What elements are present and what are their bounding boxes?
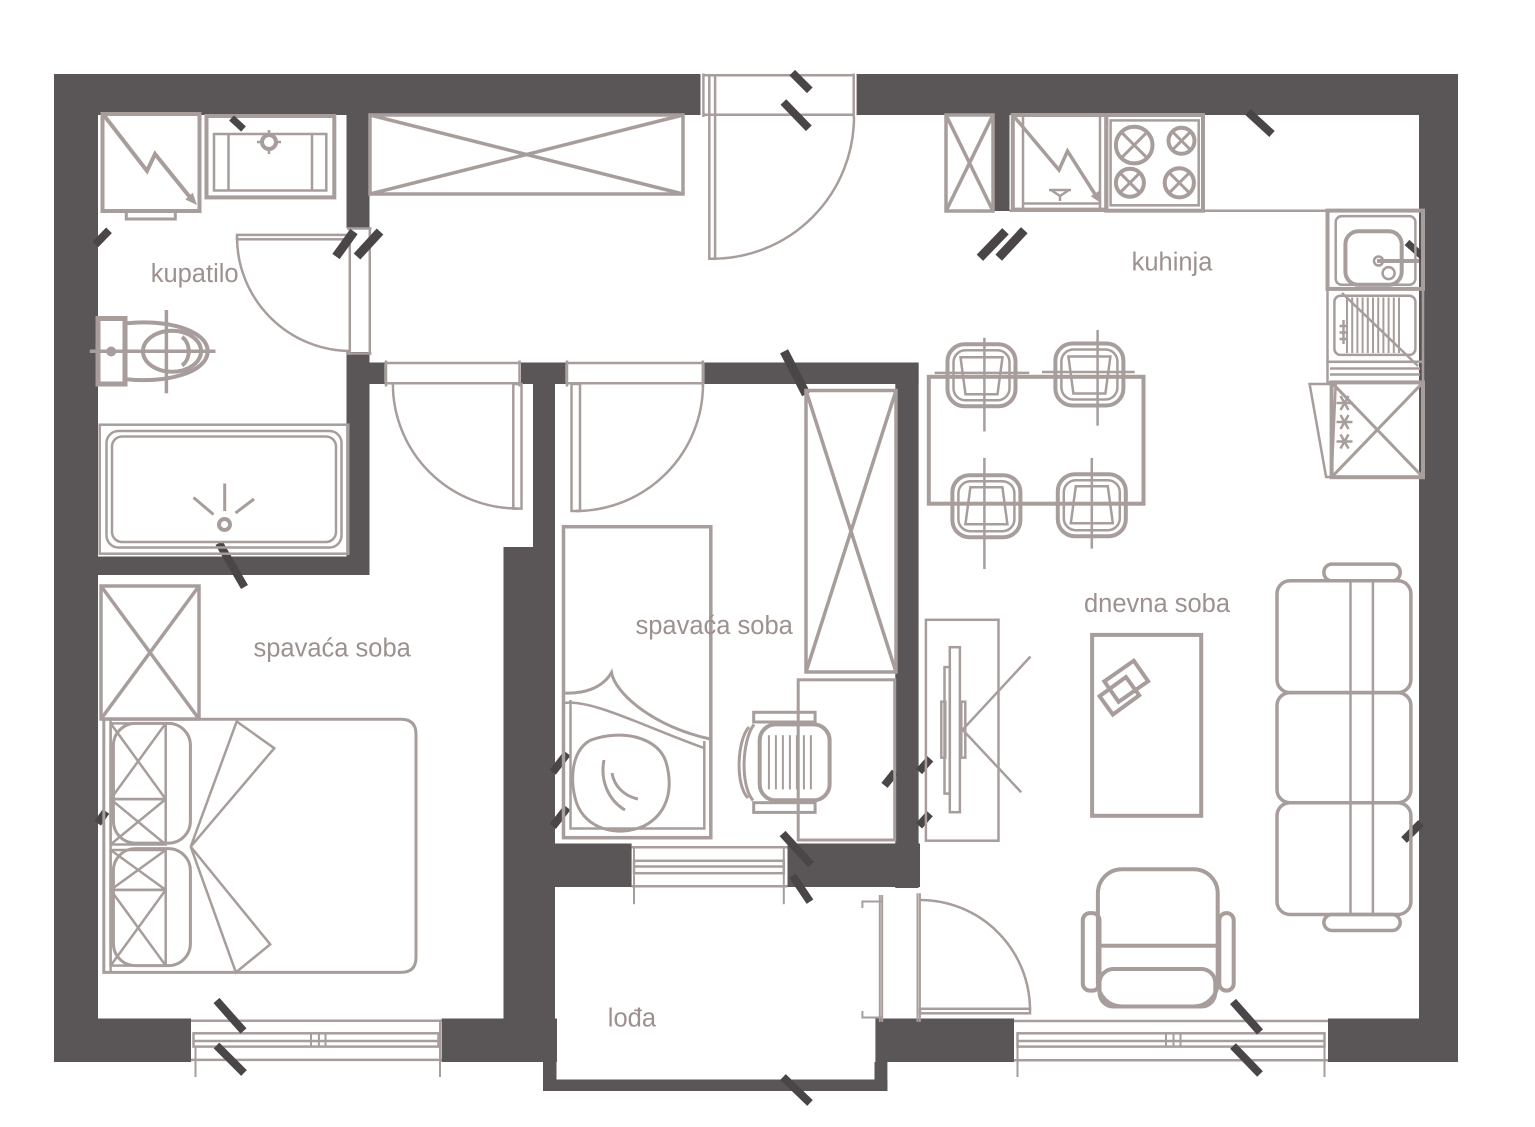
svg-text:spavaća soba: spavaća soba bbox=[254, 635, 412, 663]
svg-text:spavaća soba: spavaća soba bbox=[636, 612, 794, 640]
svg-text:lođa: lođa bbox=[608, 1005, 657, 1033]
svg-text:kuhinja: kuhinja bbox=[1132, 249, 1214, 277]
svg-text:dnevna soba: dnevna soba bbox=[1084, 590, 1231, 618]
svg-text:kupatilo: kupatilo bbox=[151, 260, 239, 288]
